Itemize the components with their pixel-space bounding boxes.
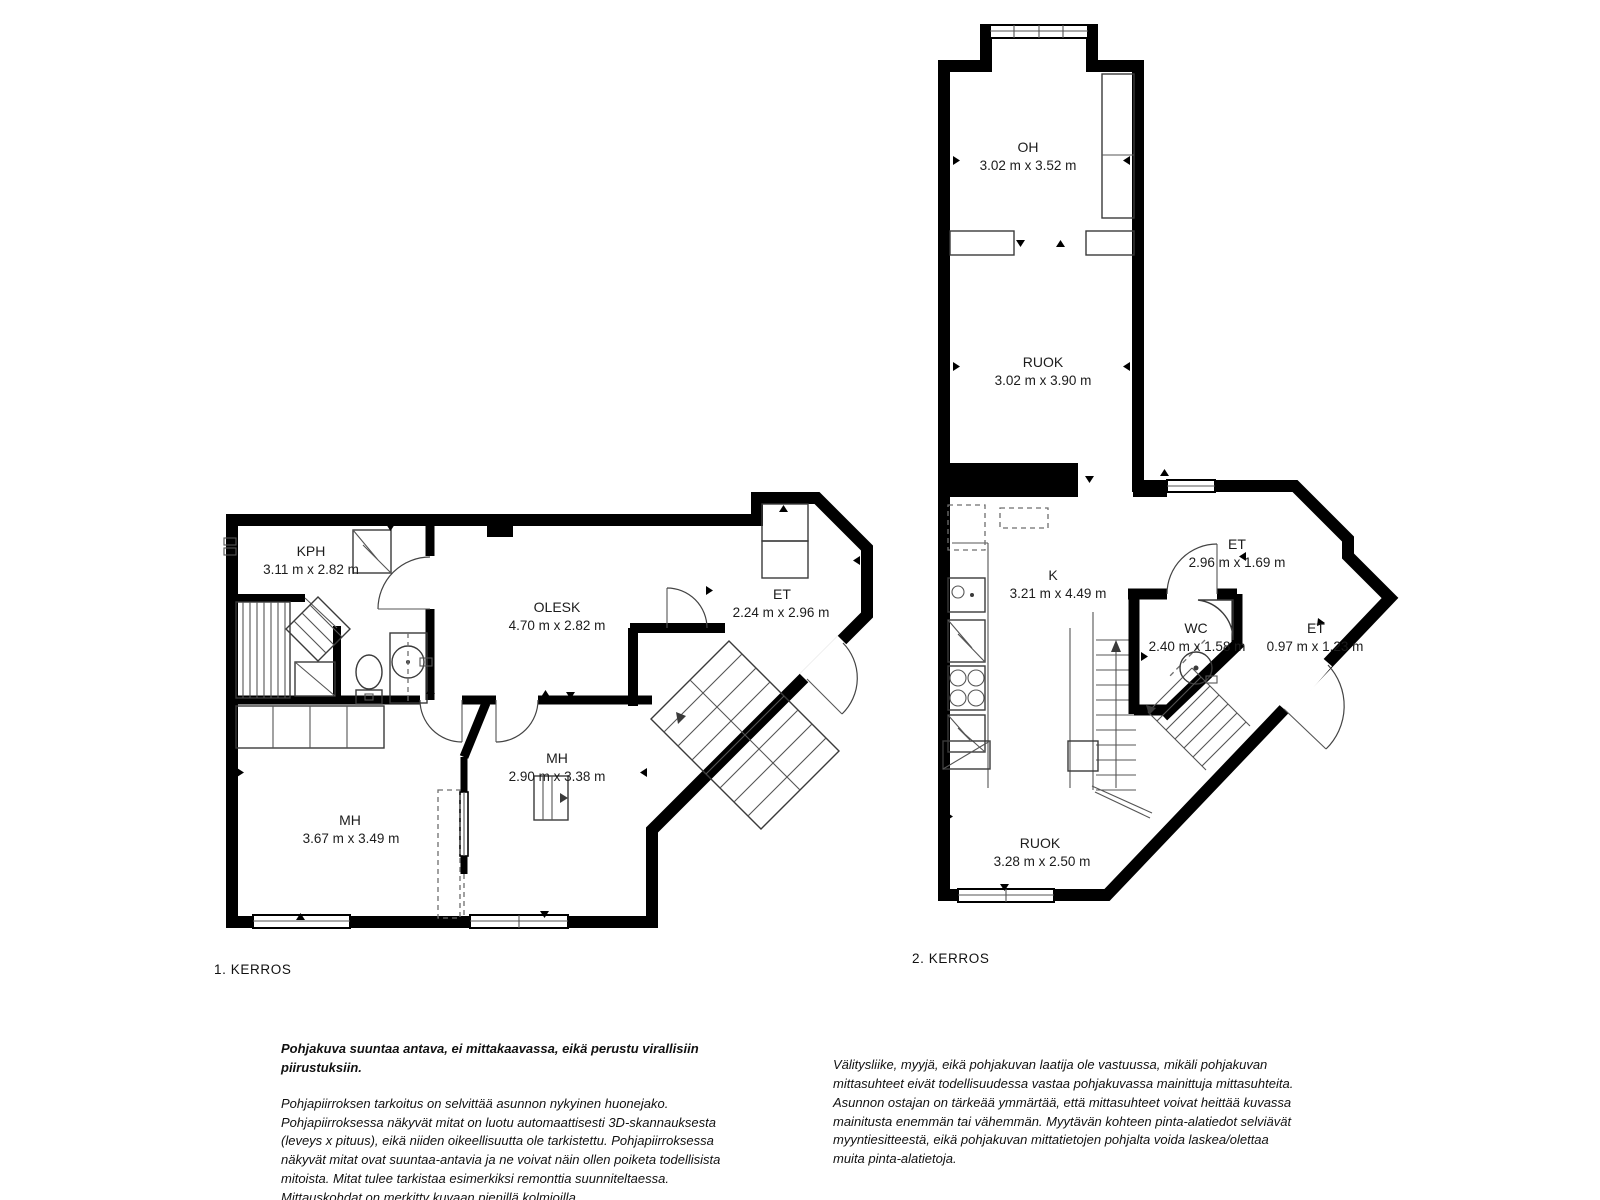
window-icon [1167, 480, 1215, 492]
cabinet-icon [943, 741, 1098, 771]
disclaimer-right-body: Välitysliike, myyjä, eikä pohjakuvan laa… [833, 1056, 1301, 1169]
window-icon [470, 915, 568, 928]
floorplan-svg: KPH 3.11 m x 2.82 m OLESK 4.70 m x 2.82 … [0, 0, 1600, 1200]
room-label: MH [546, 750, 568, 766]
room-dims: 3.67 m x 3.49 m [303, 831, 400, 846]
disclaimer-left-title: Pohjakuva suuntaa antava, ei mittakaavas… [281, 1040, 743, 1078]
stairs-icon [1070, 612, 1136, 790]
interior-wall [938, 463, 1078, 497]
sauna-bench-icon [236, 597, 350, 698]
entrance-door-icon [805, 641, 857, 714]
cabinet-icon [950, 231, 1134, 255]
interior-wall [1133, 481, 1167, 497]
disclaimer-left: Pohjakuva suuntaa antava, ei mittakaavas… [281, 1040, 743, 1200]
room-dims: 3.21 m x 4.49 m [1010, 586, 1107, 601]
room-dims: 2.96 m x 1.69 m [1189, 555, 1286, 570]
floor2-plan: OH 3.02 m x 3.52 m RUOK 3.02 m x 3.90 m … [912, 25, 1390, 966]
room-label: MH [339, 812, 361, 828]
room-dims: 3.02 m x 3.52 m [980, 158, 1077, 173]
room-dims: 3.11 m x 2.82 m [263, 562, 359, 577]
oven-icon [948, 715, 985, 752]
floor1-caption: 1. KERROS [214, 962, 291, 977]
room-dims: 2.40 m x 1.58 m [1149, 639, 1246, 654]
stove-icon [948, 666, 985, 710]
entrance-door-icon [1284, 661, 1344, 749]
room-label: ET [1228, 536, 1246, 552]
wall-stub [487, 520, 513, 537]
window-icon [958, 889, 1054, 902]
room-label: OLESK [534, 599, 581, 615]
room-dims: 3.28 m x 2.50 m [994, 854, 1091, 869]
room-label: KPH [297, 543, 326, 559]
disclaimer-left-body: Pohjapiirroksen tarkoitus on selvittää a… [281, 1095, 743, 1200]
mh-right-door-icon [496, 700, 538, 742]
floorplan-page: KPH 3.11 m x 2.82 m OLESK 4.70 m x 2.82 … [0, 0, 1600, 1200]
floor1-plan: KPH 3.11 m x 2.82 m OLESK 4.70 m x 2.82 … [214, 498, 867, 977]
room-label: RUOK [1020, 835, 1061, 851]
mh-left-door-icon [420, 700, 462, 742]
disclaimer-right: Välitysliike, myyjä, eikä pohjakuvan laa… [833, 1056, 1301, 1169]
room-dims: 4.70 m x 2.82 m [509, 618, 606, 633]
room-dims: 0.97 m x 1.23 m [1267, 639, 1364, 654]
room-dims: 3.02 m x 3.90 m [995, 373, 1092, 388]
wardrobe-icon [236, 706, 384, 748]
room-label: OH [1018, 139, 1039, 155]
room-label: K [1048, 567, 1058, 583]
closet-icon [1102, 74, 1134, 218]
room-label: ET [1307, 620, 1325, 636]
room-dims: 2.90 m x 3.38 m [509, 769, 606, 784]
glass-partition-icon [438, 790, 468, 918]
room-label: ET [773, 586, 791, 602]
et-olesk-door-icon [667, 588, 707, 628]
et-closet-icon [762, 504, 808, 578]
kph-door-icon [378, 557, 430, 609]
room-label: WC [1184, 620, 1207, 636]
floor2-caption: 2. KERROS [912, 951, 989, 966]
sauna-door-icon [305, 598, 337, 628]
kitchen-counter-icon [948, 505, 1048, 788]
kitchen-sink-icon [948, 578, 985, 612]
room-dims: 2.24 m x 2.96 m [733, 605, 830, 620]
dishwasher-icon [948, 620, 985, 662]
room-label: RUOK [1023, 354, 1064, 370]
bay-window-icon [990, 25, 1088, 38]
